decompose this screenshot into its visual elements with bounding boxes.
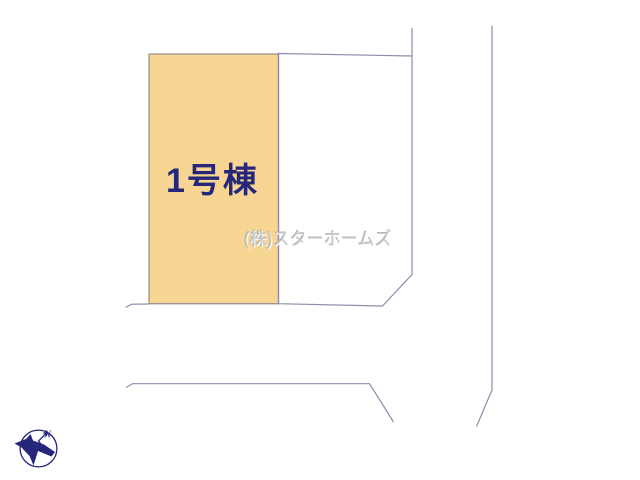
company-watermark: (株)スターホームズ [244, 229, 392, 251]
road-line-bottom [126, 384, 394, 422]
road-line-right [477, 26, 493, 427]
plot-label: 1号棟 [166, 164, 259, 198]
boundary-stub-left [126, 304, 150, 308]
plot-adjacent [279, 54, 413, 307]
compass-north-label: N [43, 430, 52, 441]
site-plan-canvas: N 1号棟 (株)スターホームズ [0, 0, 640, 480]
compass: N [15, 430, 57, 467]
